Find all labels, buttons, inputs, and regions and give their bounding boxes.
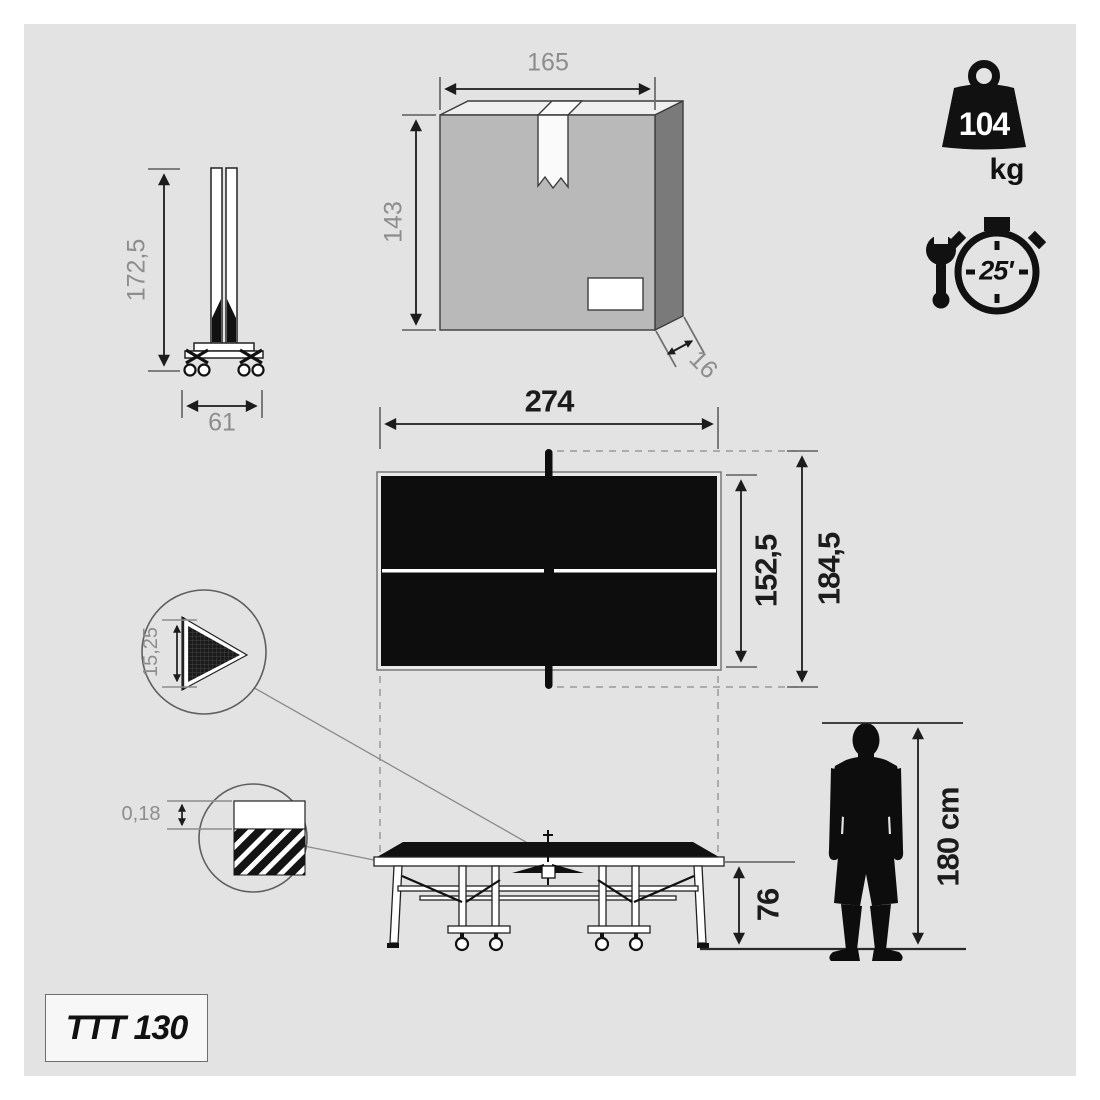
person-foot-right [872,949,903,961]
person-leg-right [870,904,891,950]
box-width-label: 165 [527,51,569,76]
person-silhouette [829,723,903,961]
surface-core-layer [234,829,305,875]
thickness-label: 0,18 [122,804,161,824]
net-top-view [545,449,553,689]
table-width-label: 152,5 [751,535,782,608]
model-label: TTT 130 [66,1009,187,1048]
person-foot-left [829,949,860,961]
leg-feet [387,933,709,948]
box-shipping-label [588,278,643,310]
box-tape-front [538,115,568,188]
weight-value: 104 [959,108,1009,140]
assembly-time-value: 25' [979,258,1012,285]
net-height-label: 15,25 [141,627,161,677]
table-height-label: 76 [753,889,784,921]
caster-wheels [185,365,264,376]
table-length-label: 274 [525,386,574,417]
person-shorts [834,834,898,906]
spec-sheet: 172,5 61 165 143 16 104 kg 25' 274 152,5… [0,0,1100,1100]
weight-unit: kg [989,155,1024,185]
folded-table-drawing [185,168,264,376]
diagram-scene [0,0,1100,1100]
side-view-dimensions [700,862,966,949]
model-label-box: TTT 130 [45,994,208,1062]
center-line-right [554,569,716,573]
folded-height-label: 172,5 [125,239,150,302]
folded-table-dimensions [148,169,262,418]
person-height-label: 180 cm [933,787,964,886]
surface-callout-line [304,846,379,861]
folded-base-bar [194,343,254,351]
side-view-wheels [456,938,642,950]
table-side-view [374,830,724,950]
package-box-drawing [440,101,683,330]
box-depth-arrow [668,341,692,354]
surface-top-layer [234,801,305,829]
folded-width-label: 61 [208,411,236,436]
wrench-icon [926,226,956,309]
net-width-label: 184,5 [814,533,845,606]
person-leg-left [841,904,862,950]
box-side-face [655,101,683,330]
center-line-left [382,569,544,573]
surface-detail-callout [167,784,379,892]
box-height-label: 143 [382,201,407,243]
